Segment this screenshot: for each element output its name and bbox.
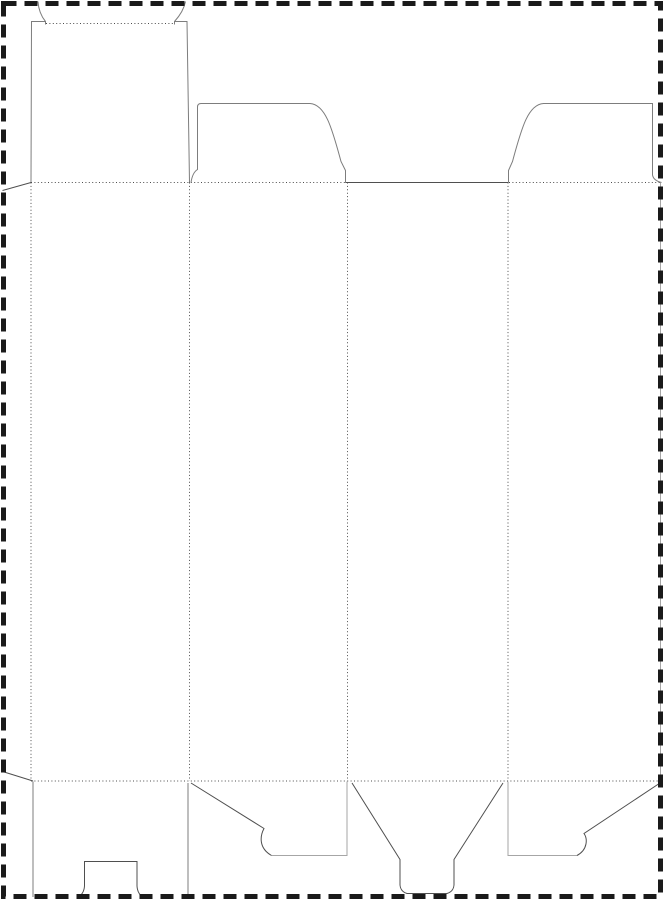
dieline-page <box>0 0 664 900</box>
lid-right-edge <box>175 22 190 183</box>
bottom-lock-flap-notch <box>78 862 143 898</box>
bottom-dust-flap-right-edge <box>508 782 577 856</box>
top-dust-flap-right <box>509 104 662 183</box>
lid-left-edge <box>31 22 46 183</box>
glue-flap-bottom-edge <box>3 772 34 782</box>
bottom-dust-flap-left-edge <box>272 782 348 856</box>
top-dust-flap-left <box>191 104 346 183</box>
bottom-dust-flap-left-cut <box>191 783 272 856</box>
box-dieline-drawing <box>0 0 664 900</box>
bottom-dust-flap-right-cut <box>577 782 662 856</box>
tuck-left-shoulder <box>38 2 46 22</box>
page-border-dashed <box>4 4 661 897</box>
glue-flap-top-edge <box>3 183 32 191</box>
bottom-tuck-tongue <box>352 783 503 894</box>
